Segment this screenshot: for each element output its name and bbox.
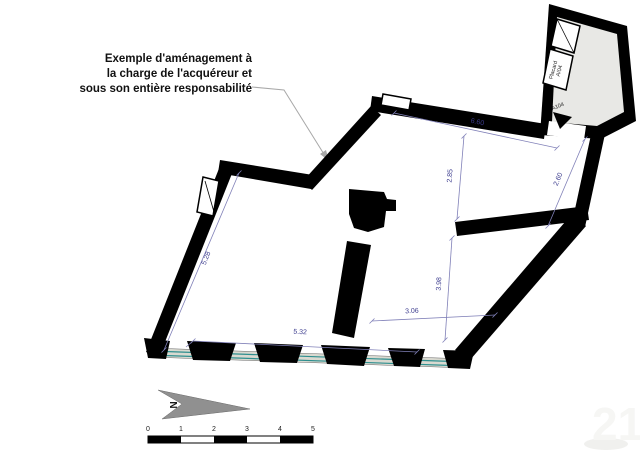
dimension-lower-room-width: 3.06 bbox=[370, 308, 498, 324]
dimension-upper-height: 2.85 bbox=[447, 134, 467, 222]
dimension-lower-room-height: 3.98 bbox=[436, 236, 455, 343]
closet-upper bbox=[551, 19, 580, 53]
scale-tick: 4 bbox=[278, 426, 282, 433]
scale-tick: 5 bbox=[311, 426, 315, 433]
wall-left bbox=[146, 161, 235, 357]
dimensions: 6.60 2.85 2.60 5.28 bbox=[162, 111, 588, 355]
dimension-label-bottom-width: 5.32 bbox=[293, 329, 307, 337]
floor-plan-svg: 21 bbox=[0, 0, 640, 454]
scale-tick: 2 bbox=[212, 426, 216, 433]
scale-bar: 0 1 2 3 4 5 bbox=[146, 426, 315, 443]
wall-notch bbox=[303, 106, 381, 190]
leader-line bbox=[252, 87, 329, 161]
scale-tick: 1 bbox=[179, 426, 183, 433]
chimney-block bbox=[349, 189, 396, 232]
dimension-label-left-length: 5.28 bbox=[201, 251, 213, 266]
wall-partition bbox=[332, 241, 371, 338]
dimension-label-lower-room-height: 3.98 bbox=[436, 277, 444, 291]
watermark: 21 bbox=[584, 398, 640, 450]
wall-right-lower bbox=[455, 215, 586, 360]
dimension-label-upper-height: 2.85 bbox=[447, 169, 455, 183]
scale-tick: 0 bbox=[146, 426, 150, 433]
watermark-text: 21 bbox=[592, 398, 640, 450]
dimension-label-lower-room-width: 3.06 bbox=[405, 308, 419, 316]
plan-sheet: Exemple d'aménagement à la charge de l'a… bbox=[0, 0, 640, 454]
north-arrow: N bbox=[158, 390, 250, 419]
scale-tick: 3 bbox=[245, 426, 249, 433]
bottom-wall bbox=[144, 338, 474, 369]
dimension-label-right-height: 2.60 bbox=[553, 172, 565, 187]
wall-top-left bbox=[218, 160, 313, 189]
north-letter: N bbox=[167, 401, 178, 408]
